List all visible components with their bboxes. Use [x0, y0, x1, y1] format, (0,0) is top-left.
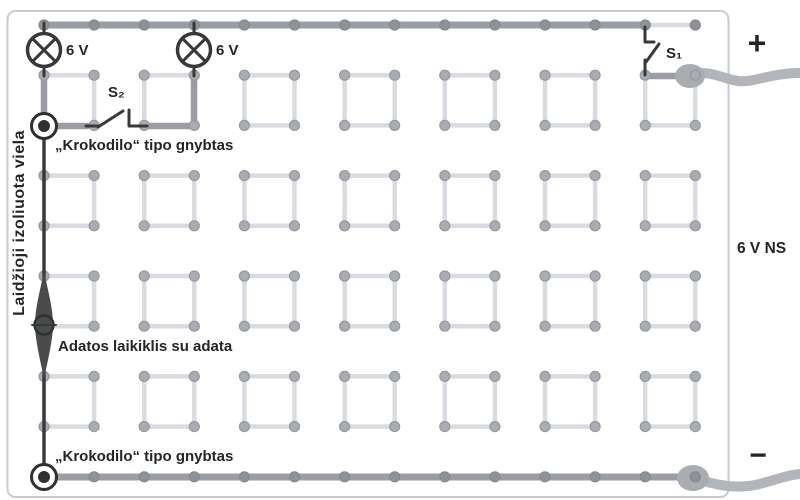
peg [189, 271, 199, 281]
lamp2-voltage-label: 6 V [216, 42, 239, 59]
peg [690, 371, 700, 381]
peg [89, 271, 99, 281]
peg [690, 472, 700, 482]
power-supply-label: 6 V NS [737, 240, 786, 257]
negative-lead-wire [694, 474, 800, 487]
peg [640, 321, 650, 331]
peg [590, 371, 600, 381]
peg [440, 120, 450, 130]
peg [139, 171, 149, 181]
peg [590, 472, 600, 482]
switch2-blade [98, 111, 123, 127]
peg [189, 422, 199, 432]
grid-links-layer [44, 25, 695, 477]
peg [340, 422, 350, 432]
peg [239, 120, 249, 130]
peg [440, 171, 450, 181]
peg [690, 20, 700, 30]
peg [640, 171, 650, 181]
peg [189, 371, 199, 381]
peg [89, 371, 99, 381]
peg [440, 422, 450, 432]
peg [239, 20, 249, 30]
peg [690, 70, 700, 80]
peg [640, 371, 650, 381]
needle-holder-label: Adatos laikiklis su adata [58, 338, 233, 355]
clip-top-label: „Krokodilo“ tipo gnybtas [55, 137, 233, 154]
crocodile-clip-top-icon [32, 114, 57, 139]
clip-bottom-label: „Krokodilo“ tipo gnybtas [55, 448, 233, 465]
minus-terminal-label: − [749, 439, 767, 472]
peg [89, 20, 99, 30]
peg [590, 120, 600, 130]
peg [440, 20, 450, 30]
peg [440, 70, 450, 80]
peg [540, 422, 550, 432]
peg [590, 321, 600, 331]
peg [189, 120, 199, 130]
peg [490, 321, 500, 331]
peg [290, 422, 300, 432]
peg [340, 221, 350, 231]
peg [139, 221, 149, 231]
peg [690, 120, 700, 130]
peg [139, 472, 149, 482]
peg [490, 221, 500, 231]
peg [189, 171, 199, 181]
peg [89, 422, 99, 432]
pegs-layer [39, 20, 700, 482]
peg [390, 221, 400, 231]
lamp1-voltage-label: 6 V [66, 42, 89, 59]
positive-lead-wire [691, 73, 800, 81]
switch-s1-icon [645, 27, 659, 75]
peg [390, 472, 400, 482]
peg [290, 271, 300, 281]
peg [290, 221, 300, 231]
peg-board-circuit-svg: 6 V 6 V S₂ S₁ „Krokodilo“ tipo gnybtas A… [0, 0, 800, 500]
peg [239, 321, 249, 331]
peg [390, 371, 400, 381]
switch2-label: S₂ [108, 84, 125, 101]
peg [540, 271, 550, 281]
peg [239, 472, 249, 482]
peg [490, 70, 500, 80]
peg [490, 472, 500, 482]
peg [540, 120, 550, 130]
peg [139, 422, 149, 432]
peg [640, 271, 650, 281]
switch1-label: S₁ [666, 45, 682, 62]
peg [390, 422, 400, 432]
peg [690, 422, 700, 432]
peg [540, 371, 550, 381]
peg [89, 171, 99, 181]
circuit-diagram-figure: 6 V 6 V S₂ S₁ „Krokodilo“ tipo gnybtas A… [0, 0, 800, 500]
clip-bottom-dot [38, 471, 50, 483]
peg [340, 20, 350, 30]
peg [640, 472, 650, 482]
peg [239, 271, 249, 281]
peg [139, 271, 149, 281]
peg [340, 371, 350, 381]
peg [440, 271, 450, 281]
peg [340, 171, 350, 181]
peg [390, 20, 400, 30]
switch1-top-contact [645, 27, 654, 42]
peg [640, 422, 650, 432]
peg [440, 221, 450, 231]
peg [690, 321, 700, 331]
peg [139, 371, 149, 381]
peg [139, 321, 149, 331]
peg [290, 20, 300, 30]
needle-holder-icon [32, 272, 56, 378]
peg [540, 472, 550, 482]
peg [239, 70, 249, 80]
peg [290, 171, 300, 181]
peg [590, 171, 600, 181]
peg [189, 321, 199, 331]
peg [590, 20, 600, 30]
peg [590, 271, 600, 281]
peg [490, 20, 500, 30]
peg [290, 120, 300, 130]
peg [390, 271, 400, 281]
lamp2-to-switch2-wire [146, 76, 194, 126]
peg [239, 422, 249, 432]
peg [540, 221, 550, 231]
insulated-wire-label: Laidžioji izoliuota viela [11, 130, 28, 316]
peg [139, 70, 149, 80]
peg [390, 171, 400, 181]
peg [590, 221, 600, 231]
peg [139, 20, 149, 30]
peg [290, 472, 300, 482]
peg [340, 271, 350, 281]
peg [290, 371, 300, 381]
peg [390, 120, 400, 130]
crocodile-clip-bottom-icon [32, 465, 57, 490]
peg [239, 221, 249, 231]
peg [540, 20, 550, 30]
peg [189, 221, 199, 231]
peg [440, 472, 450, 482]
peg [89, 221, 99, 231]
peg [640, 120, 650, 130]
peg [490, 271, 500, 281]
peg [590, 70, 600, 80]
lamp-2 [178, 23, 211, 76]
peg [340, 472, 350, 482]
peg [540, 321, 550, 331]
peg [490, 371, 500, 381]
peg [89, 472, 99, 482]
circuit-wires [44, 25, 682, 477]
peg [89, 321, 99, 331]
peg [490, 171, 500, 181]
plus-terminal-label: + [748, 25, 767, 61]
peg [540, 171, 550, 181]
peg [89, 70, 99, 80]
peg [690, 271, 700, 281]
clip-top-dot [38, 120, 50, 132]
peg [690, 171, 700, 181]
peg [440, 371, 450, 381]
switch1-blade [646, 44, 659, 62]
peg [590, 422, 600, 432]
peg [340, 120, 350, 130]
peg [640, 221, 650, 231]
peg [340, 70, 350, 80]
peg [490, 120, 500, 130]
lamp-1 [28, 23, 61, 76]
peg [290, 321, 300, 331]
peg [690, 221, 700, 231]
peg [239, 171, 249, 181]
peg [340, 321, 350, 331]
peg [290, 70, 300, 80]
peg [440, 321, 450, 331]
peg [239, 371, 249, 381]
peg [189, 472, 199, 482]
peg [390, 70, 400, 80]
peg [390, 321, 400, 331]
peg [540, 70, 550, 80]
peg [490, 422, 500, 432]
